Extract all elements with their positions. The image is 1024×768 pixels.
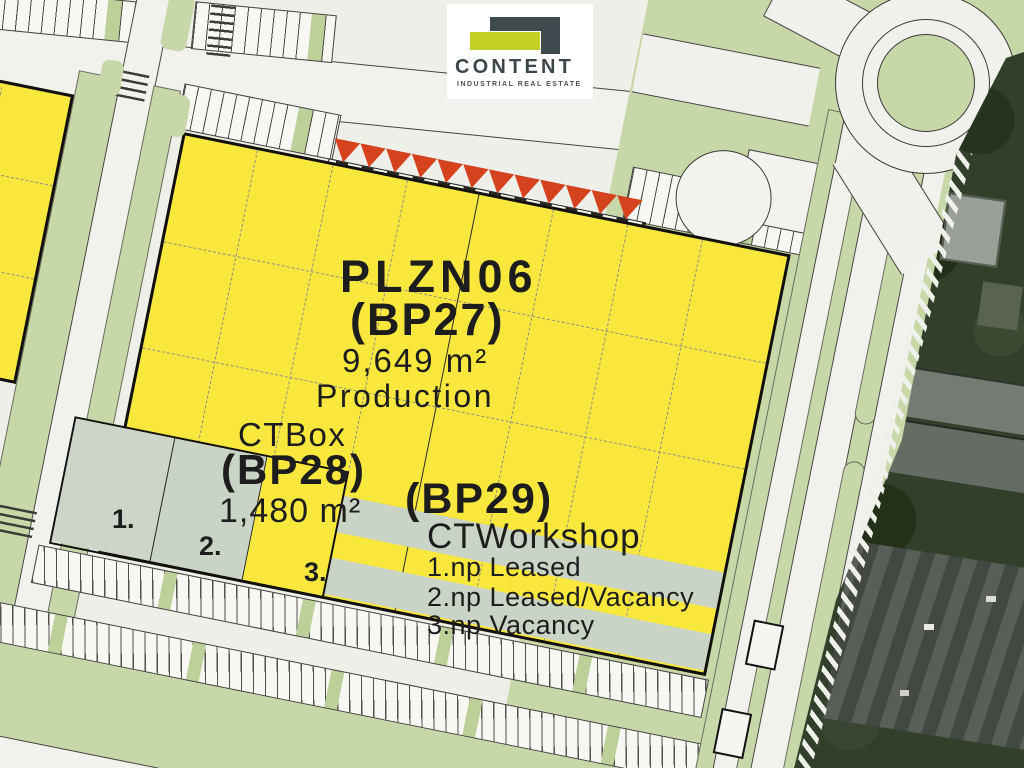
satellite-vehicle bbox=[986, 596, 996, 602]
satellite-shed bbox=[977, 281, 1023, 330]
label-workshop-name: CTWorkshop bbox=[427, 519, 641, 554]
label-workshop-floor-2: 2.np Leased/Vacancy bbox=[427, 584, 694, 611]
footpath-hatch bbox=[206, 3, 235, 57]
label-plzn06-area: 9,649 m² bbox=[342, 344, 488, 377]
satellite-vehicle bbox=[924, 624, 934, 630]
floor-marker-2: 2. bbox=[199, 533, 222, 560]
floor-marker-3: 3. bbox=[304, 559, 327, 586]
logo-box: CONTENT INDUSTRIAL REAL ESTATE bbox=[447, 4, 593, 99]
label-plzn06-use: Production bbox=[316, 380, 494, 412]
label-ctbox-code: (BP28) bbox=[221, 449, 366, 491]
label-workshop-floor-3: 3.np Vacancy bbox=[427, 612, 595, 639]
grid-line bbox=[0, 125, 53, 186]
logo-mark-lime bbox=[470, 32, 540, 50]
logo-tagline: INDUSTRIAL REAL ESTATE bbox=[457, 81, 582, 88]
label-bp29-code: (BP29) bbox=[405, 478, 553, 521]
roundabout-island bbox=[877, 34, 975, 132]
verge-corner-pad bbox=[155, 92, 192, 139]
site-plan-screenshot: { "logo": { "brand": "CONTENT", "tagline… bbox=[0, 0, 1024, 768]
label-plzn06-name: PLZN06 bbox=[340, 254, 538, 299]
logo-mark-column bbox=[541, 17, 560, 54]
logo-brand: CONTENT bbox=[455, 57, 574, 77]
floor-marker-1: 1. bbox=[112, 506, 135, 533]
grid-line bbox=[0, 218, 34, 279]
label-workshop-floor-1: 1.np Leased bbox=[427, 554, 581, 581]
label-ctbox-area: 1,480 m² bbox=[219, 494, 361, 528]
satellite-vehicle bbox=[900, 690, 909, 696]
label-plzn06-code: (BP27) bbox=[350, 297, 505, 342]
grid-line bbox=[0, 87, 2, 366]
